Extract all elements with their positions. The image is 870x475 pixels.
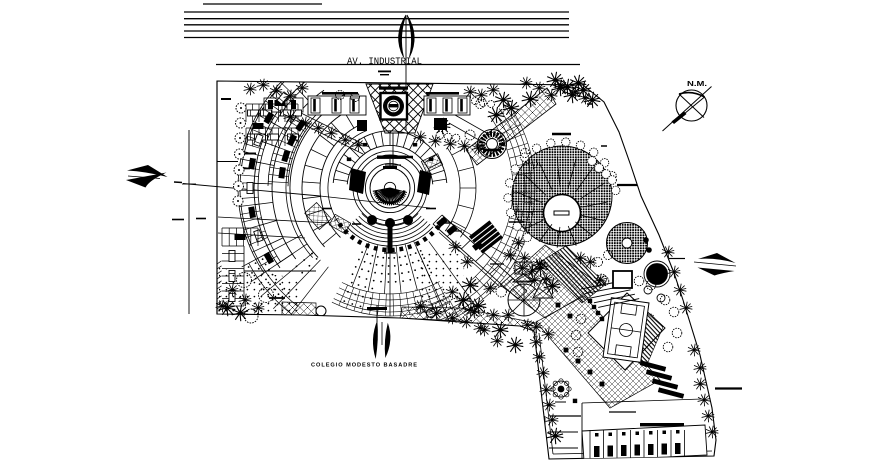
svg-text:AV. INDUSTRIAL: AV. INDUSTRIAL <box>347 56 422 68</box>
svg-text:N.M.: N.M. <box>687 79 707 88</box>
svg-text:COLEGIO MODESTO BASADRE: COLEGIO MODESTO BASADRE <box>311 363 417 369</box>
